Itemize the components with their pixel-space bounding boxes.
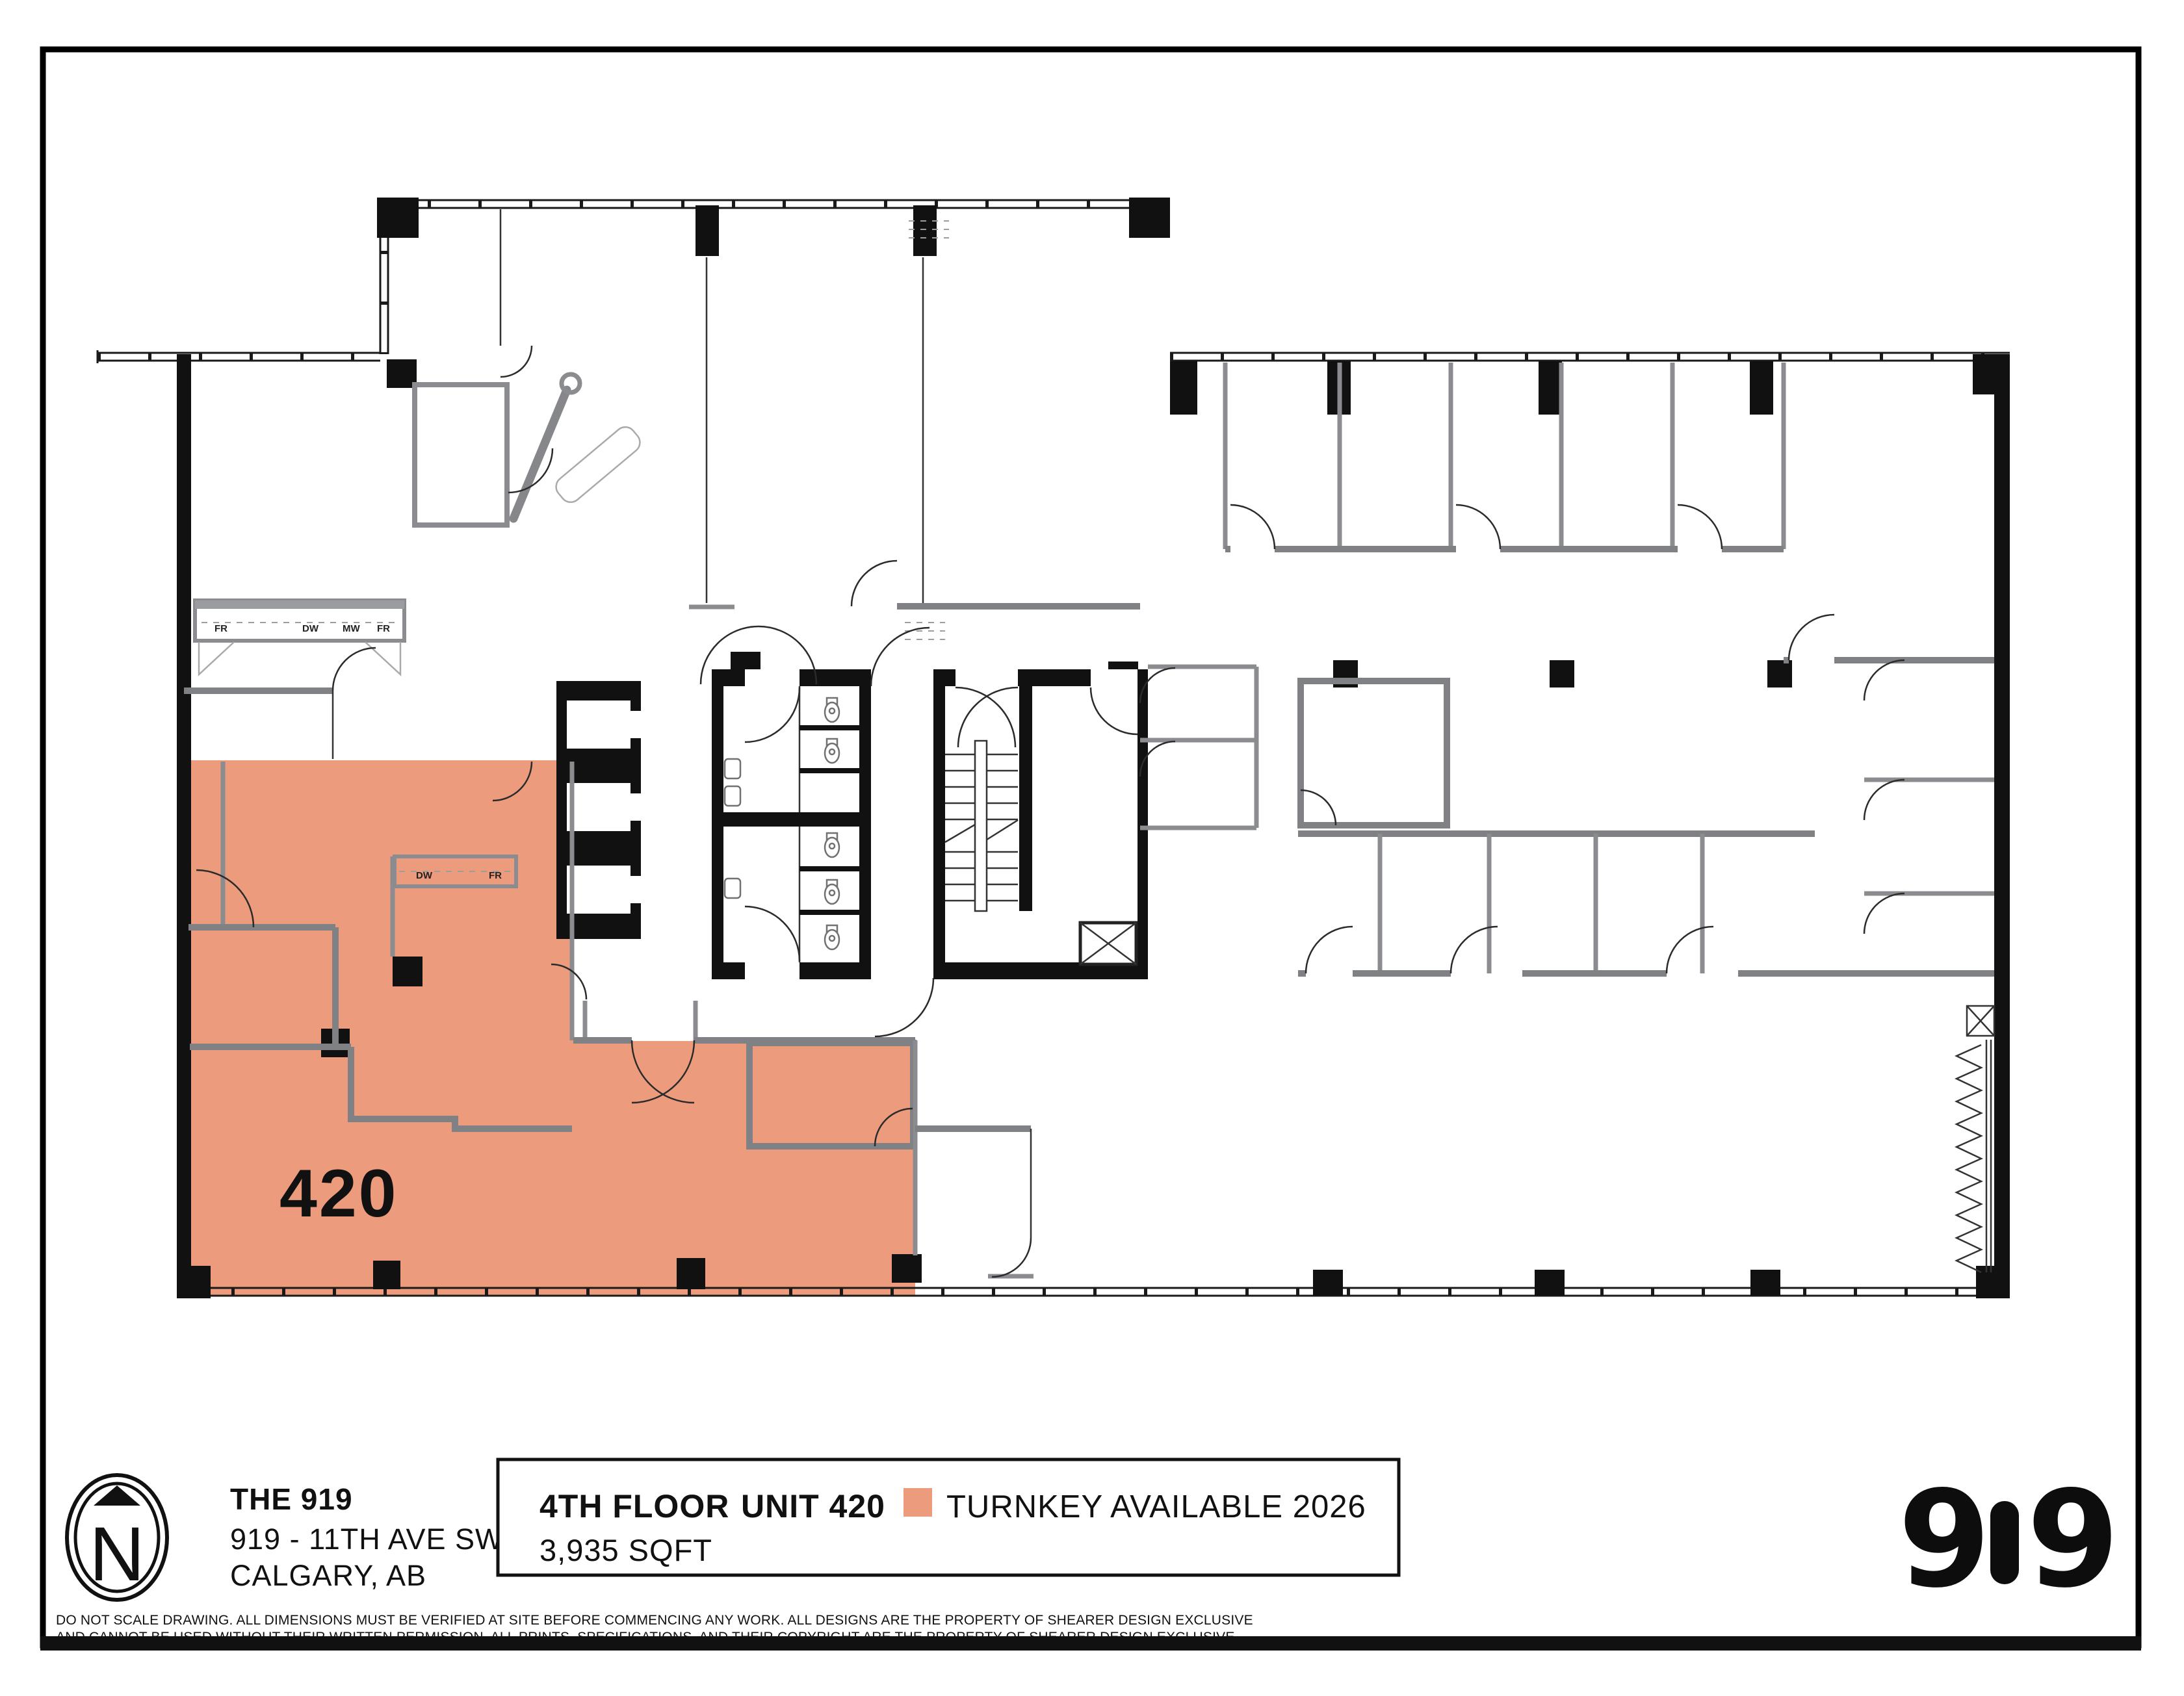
- disclaimer-line1: DO NOT SCALE DRAWING. ALL DIMENSIONS MUS…: [56, 1613, 1253, 1628]
- sink-icon: [725, 786, 740, 806]
- floor-plan-sheet: FR DW MW FR: [0, 0, 2184, 1696]
- logo-digit-right: 9: [2027, 1463, 2120, 1617]
- toilet-icon: [825, 698, 839, 722]
- legend-swatch: [903, 1488, 932, 1517]
- building-address-line1: 919 - 11TH AVE SW: [230, 1523, 503, 1556]
- kitchen-label-dw: DW: [302, 623, 319, 634]
- kitchen-label-fr-left: FR: [214, 623, 227, 634]
- area-label: 3,935 SQFT: [539, 1533, 712, 1567]
- building-address-line2: CALGARY, AB: [230, 1559, 426, 1592]
- disclaimer-line2: AND CANNOT BE USED WITHOUT THEIR WRITTEN…: [56, 1630, 1239, 1645]
- toilet-icon: [825, 739, 839, 763]
- floor-label: 4TH FLOOR: [539, 1488, 729, 1524]
- logo-digit-left: 9: [1898, 1463, 1991, 1617]
- kitchen-label-fr-right: FR: [377, 623, 390, 634]
- legend-label: TURNKEY AVAILABLE 2026: [946, 1489, 1366, 1524]
- unit-label: UNIT 420: [741, 1488, 885, 1524]
- toilet-icon: [825, 880, 839, 904]
- kitchenette-label-fr: FR: [489, 870, 502, 881]
- sink-icon: [725, 759, 740, 778]
- stairwell: [933, 669, 1148, 979]
- shaft-x-box: [1080, 923, 1136, 964]
- building-name: THE 919: [230, 1482, 353, 1516]
- sink-icon: [725, 879, 740, 898]
- kitchenette-label-dw: DW: [416, 870, 433, 881]
- logo-pill: [1990, 1501, 2019, 1584]
- elevator-bank: [556, 681, 642, 939]
- north-letter: N: [89, 1511, 144, 1597]
- kitchen-label-mw: MW: [343, 623, 360, 634]
- toilet-icon: [825, 833, 839, 857]
- info-box: 4TH FLOOR UNIT 420 3,935 SQFT TURNKEY AV…: [498, 1459, 1399, 1575]
- washrooms: [712, 669, 871, 979]
- unit-number-label: 420: [279, 1156, 398, 1231]
- toilet-icon: [825, 925, 839, 949]
